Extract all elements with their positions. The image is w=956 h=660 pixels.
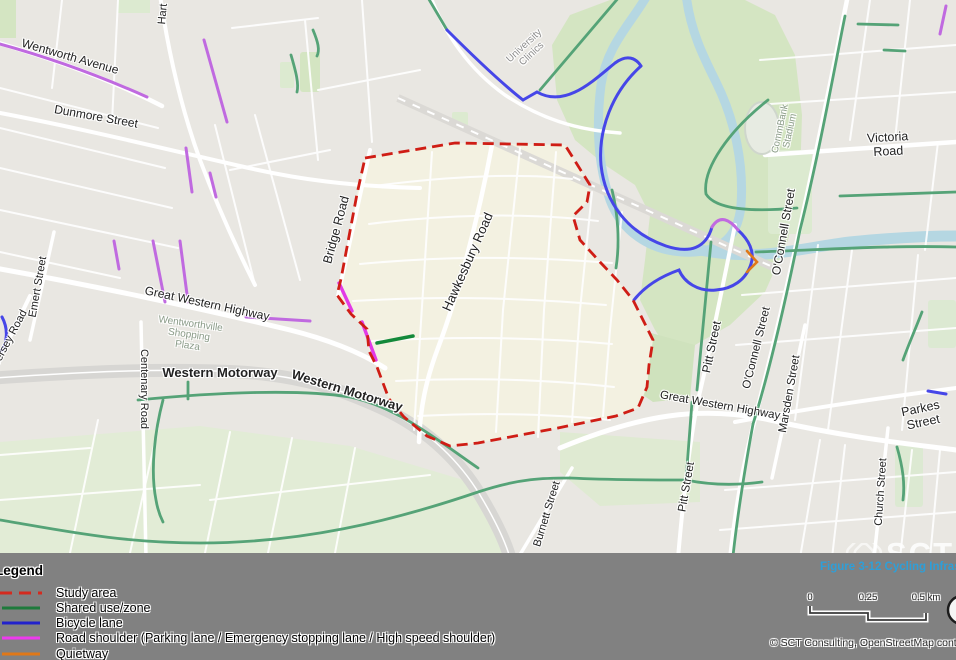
road-shoulder-swatch-icon bbox=[0, 631, 44, 645]
map-canvas: Wentworth Avenue Dunmore Street Hart Eme… bbox=[0, 0, 956, 553]
street-label-victoria-road: Victoria Road bbox=[853, 129, 922, 160]
legend-item-shared-use: Shared use/zone bbox=[0, 600, 151, 615]
figure-caption: Figure 3-12 Cycling Infrastructure bbox=[820, 561, 956, 573]
legend-item-label: Bicycle lane bbox=[56, 616, 123, 630]
scalebar bbox=[800, 603, 950, 625]
quietway-swatch-icon bbox=[0, 647, 44, 660]
legend-item-bicycle-lane: Bicycle lane bbox=[0, 615, 123, 630]
bicycle-lane-swatch-icon bbox=[0, 616, 44, 630]
scalebar-tick-end: 0.5 km bbox=[912, 592, 941, 603]
street-label-western-motorway-1: Western Motorway bbox=[162, 366, 277, 380]
map-art bbox=[0, 0, 956, 553]
street-label-centenary-road: Centenary Road bbox=[138, 349, 150, 429]
street-label-hart: Hart bbox=[156, 3, 170, 25]
north-arrow-icon bbox=[944, 593, 956, 629]
legend-item-label: Shared use/zone bbox=[56, 601, 151, 615]
sct-logo-diamond-icon bbox=[840, 543, 888, 553]
shared-use-swatch-icon bbox=[0, 601, 44, 615]
legend-item-quietway: Quietway bbox=[0, 646, 108, 660]
scalebar-tick-0: 0 bbox=[807, 592, 812, 603]
report-figure: Wentworth Avenue Dunmore Street Hart Eme… bbox=[0, 0, 956, 660]
legend-item-road-shoulder: Road shoulder (Parking lane / Emergency … bbox=[0, 630, 495, 645]
footer-panel: Legend Study area Shared use/zone Bicycl… bbox=[0, 553, 956, 660]
legend-item-label: Quietway bbox=[56, 647, 108, 660]
map-attribution: © SCT Consulting, OpenStreetMap contribu… bbox=[770, 637, 956, 649]
scalebar-tick-mid: 0.25 bbox=[859, 592, 878, 603]
study-area-swatch-icon bbox=[0, 586, 44, 600]
legend-title: Legend bbox=[0, 563, 43, 578]
legend-item-label: Study area bbox=[56, 586, 116, 600]
legend-item-label: Road shoulder (Parking lane / Emergency … bbox=[56, 631, 495, 645]
sct-logo-brand: SCT bbox=[886, 536, 954, 553]
legend-item-study-area: Study area bbox=[0, 585, 116, 600]
